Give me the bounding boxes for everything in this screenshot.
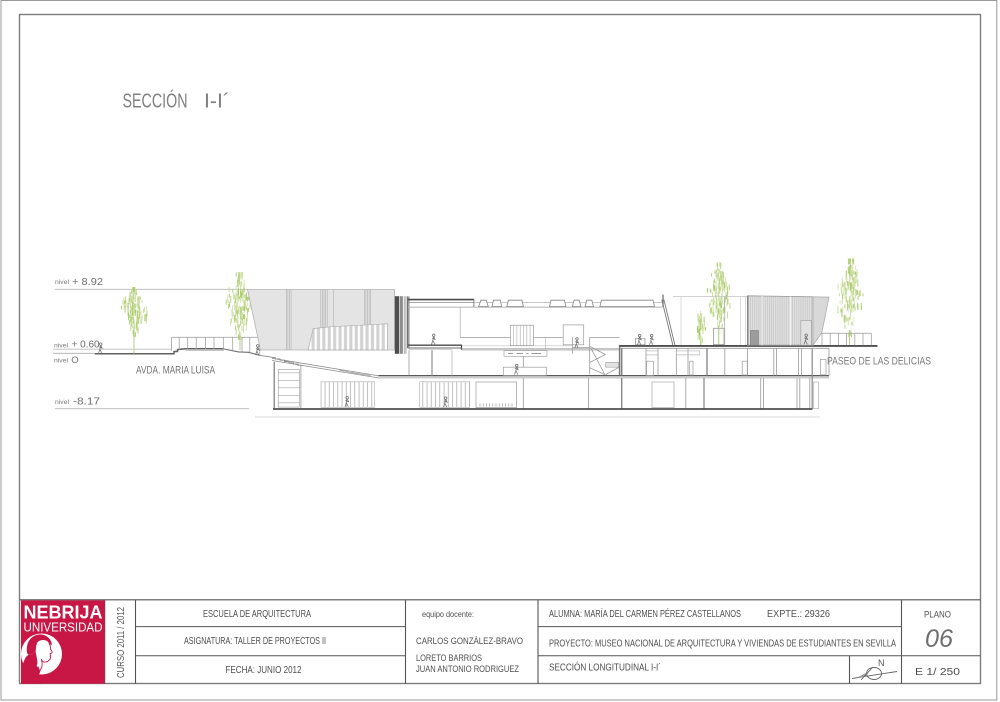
svg-text:I-I´: I-I´ — [204, 90, 230, 113]
svg-text:equipo docente:: equipo docente: — [422, 610, 474, 619]
svg-text:nivel: nivel — [54, 357, 68, 364]
svg-text:FECHA: JUNIO 2012: FECHA: JUNIO 2012 — [226, 665, 302, 676]
svg-text:N: N — [878, 658, 885, 668]
svg-text:LORETO BARRIOS: LORETO BARRIOS — [416, 653, 482, 664]
svg-text:nivel: nivel — [55, 279, 69, 286]
svg-text:E 1/ 250: E 1/ 250 — [915, 667, 961, 678]
svg-text:ASIGNATURA: TALLER DE PROYECTO: ASIGNATURA: TALLER DE PROYECTOS II — [184, 636, 326, 647]
svg-text:ESCUELA DE ARQUITECTURA: ESCUELA DE ARQUITECTURA — [203, 609, 311, 620]
svg-text:O: O — [71, 355, 78, 366]
svg-text:nivel: nivel — [55, 399, 69, 406]
svg-text:SECCIÓN: SECCIÓN — [123, 90, 188, 113]
svg-text:JUAN ANTONIO RODRIGUEZ: JUAN ANTONIO RODRIGUEZ — [416, 664, 519, 675]
svg-text:+ 8.92: + 8.92 — [72, 276, 103, 288]
svg-text:AVDA. MARIA LUISA: AVDA. MARIA LUISA — [136, 365, 216, 377]
svg-text:06: 06 — [925, 625, 953, 653]
svg-text:SECCIÓN LONGITUDINAL I-I´: SECCIÓN LONGITUDINAL I-I´ — [549, 661, 661, 674]
svg-text:PLANO: PLANO — [924, 610, 951, 620]
svg-text:EXPTE.: 29326: EXPTE.: 29326 — [767, 609, 830, 620]
svg-text:PROYECTO: MUSEO NACIONAL DE A: PROYECTO: MUSEO NACIONAL DE ARQUITECTURA… — [549, 639, 896, 650]
svg-text:PASEO DE LAS DELICIAS: PASEO DE LAS DELICIAS — [827, 356, 931, 368]
svg-text:-8.17: -8.17 — [73, 396, 100, 408]
svg-text:UNIVERSIDAD: UNIVERSIDAD — [24, 620, 103, 635]
svg-text:nivel: nivel — [54, 342, 68, 349]
svg-text:CURSO 2011 / 2012: CURSO 2011 / 2012 — [116, 607, 127, 678]
svg-text:CARLOS GONZÁLEZ-BRAVO: CARLOS GONZÁLEZ-BRAVO — [416, 636, 523, 647]
svg-text:ALUMNA: MARÍA DEL CARMEN PÉREZ: ALUMNA: MARÍA DEL CARMEN PÉREZ CASTELLAN… — [549, 607, 741, 620]
